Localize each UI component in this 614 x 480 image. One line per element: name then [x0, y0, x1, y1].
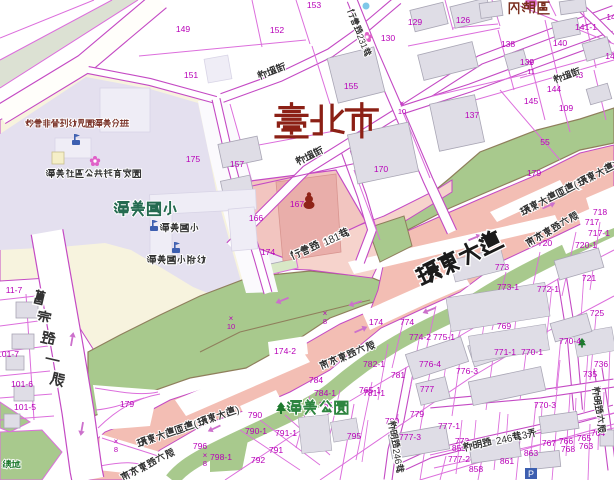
svg-text:790-1: 790-1 [245, 426, 267, 436]
svg-text:140: 140 [553, 38, 568, 48]
svg-text:774-2: 774-2 [409, 332, 431, 342]
svg-text:101-6: 101-6 [11, 379, 33, 389]
svg-text:776-3: 776-3 [456, 366, 478, 376]
svg-text:8: 8 [114, 445, 118, 454]
svg-text:768: 768 [561, 444, 576, 454]
svg-text:717-1: 717-1 [588, 228, 610, 238]
svg-text:139: 139 [520, 57, 535, 67]
svg-text:772-1: 772-1 [537, 284, 559, 294]
svg-text:725: 725 [590, 308, 605, 318]
svg-text:770-3: 770-3 [534, 400, 556, 410]
svg-text:736: 736 [594, 359, 609, 369]
svg-text:782-1: 782-1 [363, 359, 385, 369]
svg-text:11: 11 [527, 67, 535, 76]
svg-text:179: 179 [120, 399, 135, 409]
svg-text:126: 126 [456, 15, 471, 25]
svg-text:770-1: 770-1 [521, 347, 543, 357]
svg-text:141-1: 141-1 [575, 22, 597, 32]
svg-text:10: 10 [227, 322, 235, 331]
svg-text:781-1: 781-1 [363, 388, 385, 398]
svg-text:777-3: 777-3 [399, 432, 421, 442]
svg-text:101-5: 101-5 [14, 402, 36, 412]
svg-text:14: 14 [606, 12, 614, 22]
svg-text:179: 179 [527, 168, 542, 178]
svg-text:11-7: 11-7 [6, 285, 23, 295]
svg-text:152: 152 [270, 25, 285, 35]
svg-text:144: 144 [547, 84, 562, 94]
svg-text:791-1: 791-1 [275, 428, 297, 438]
svg-text:795: 795 [347, 431, 362, 441]
svg-text:167: 167 [290, 199, 305, 209]
svg-text:771-1: 771-1 [494, 347, 516, 357]
svg-text:791: 791 [269, 445, 284, 455]
svg-text:777-2: 777-2 [448, 454, 470, 464]
svg-text:174: 174 [369, 317, 384, 327]
svg-text:8: 8 [203, 459, 207, 468]
svg-text:153: 153 [307, 0, 322, 10]
svg-text:777: 777 [420, 384, 435, 394]
svg-text:792: 792 [251, 455, 266, 465]
svg-text:14: 14 [605, 51, 614, 61]
svg-text:145: 145 [524, 96, 539, 106]
svg-text:773: 773 [495, 262, 510, 272]
svg-text:763: 763 [579, 441, 594, 451]
svg-text:735: 735 [583, 369, 598, 379]
svg-text:790: 790 [248, 410, 263, 420]
svg-text:721: 721 [582, 273, 597, 283]
svg-text:138: 138 [501, 39, 516, 49]
svg-text:129: 129 [408, 17, 423, 27]
svg-text:774: 774 [400, 317, 415, 327]
svg-text:157: 157 [230, 159, 245, 169]
svg-text:718: 718 [593, 207, 608, 217]
svg-text:776-4: 776-4 [419, 359, 441, 369]
svg-text:137: 137 [465, 110, 480, 120]
svg-text:174: 174 [261, 247, 276, 257]
svg-text:784-1: 784-1 [314, 388, 336, 398]
svg-text:109: 109 [559, 103, 574, 113]
svg-text:720-1: 720-1 [575, 240, 597, 250]
svg-text:777-1: 777-1 [438, 421, 460, 431]
svg-text:770-4: 770-4 [559, 336, 581, 346]
svg-text:775-1: 775-1 [433, 332, 455, 342]
svg-text:784: 784 [309, 375, 324, 385]
svg-text:861: 861 [500, 456, 515, 466]
svg-text:101-7: 101-7 [0, 349, 19, 359]
svg-text:767: 767 [542, 438, 557, 448]
svg-text:781: 781 [391, 370, 406, 380]
svg-text:796: 796 [193, 441, 208, 451]
svg-text:10: 10 [398, 107, 406, 116]
svg-text:779: 779 [410, 409, 425, 419]
svg-text:55: 55 [540, 137, 550, 147]
svg-text:798-1: 798-1 [210, 452, 232, 462]
svg-text:155: 155 [344, 81, 359, 91]
svg-text:P: P [528, 469, 534, 479]
svg-text:773-1: 773-1 [497, 282, 519, 292]
svg-text:769: 769 [497, 321, 512, 331]
svg-text:717: 717 [585, 217, 600, 227]
svg-text:130: 130 [381, 33, 396, 43]
svg-text:149: 149 [176, 24, 191, 34]
svg-text:170: 170 [374, 164, 389, 174]
svg-text:863: 863 [524, 448, 539, 458]
svg-text:175: 175 [186, 154, 201, 164]
svg-text:8: 8 [323, 317, 327, 326]
svg-text:174-2: 174-2 [274, 346, 296, 356]
svg-text:166: 166 [249, 213, 264, 223]
svg-text:858: 858 [469, 464, 484, 474]
svg-text:151: 151 [184, 70, 199, 80]
